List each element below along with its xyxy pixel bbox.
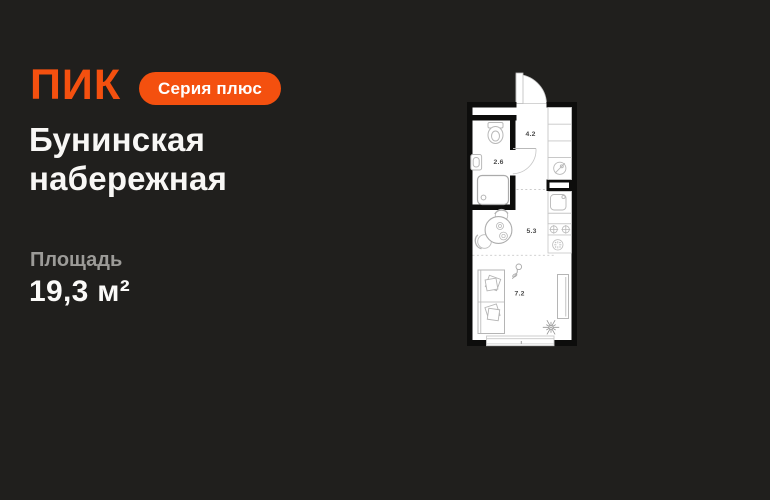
- pik-logo: ПИК: [30, 64, 121, 107]
- floorplan: 2.6 4.2 5.3 7.2: [440, 60, 610, 360]
- vent-fan-icon: [548, 235, 572, 253]
- entrance-door-icon: [516, 73, 547, 104]
- vent-shaft-icon: [547, 180, 573, 192]
- kitchen-counter: [548, 213, 572, 224]
- toilet-icon: [488, 123, 503, 144]
- room-area-hallway: 4.2: [526, 131, 536, 138]
- area-value: 19,3 м²: [29, 275, 130, 309]
- room-area-bathroom: 2.6: [494, 159, 504, 166]
- shower-icon: [478, 176, 509, 205]
- stove-icon: [548, 224, 572, 235]
- closet-icon: [548, 108, 572, 158]
- bathroom-sink-icon: [471, 155, 482, 171]
- bed-icon: [478, 270, 505, 334]
- project-title-line1: Бунинская: [29, 120, 227, 159]
- series-badge: Серия плюс: [139, 72, 281, 105]
- washing-machine-icon: [548, 158, 572, 180]
- kitchen-sink-icon: [548, 192, 572, 214]
- room-area-living: 7.2: [515, 291, 525, 298]
- area-label: Площадь: [30, 249, 122, 272]
- room-area-kitchen: 5.3: [527, 228, 537, 235]
- project-title: Бунинская набережная: [29, 120, 227, 198]
- project-title-line2: набережная: [29, 159, 227, 198]
- window-icon: [487, 336, 555, 346]
- wardrobe-icon: [558, 275, 569, 319]
